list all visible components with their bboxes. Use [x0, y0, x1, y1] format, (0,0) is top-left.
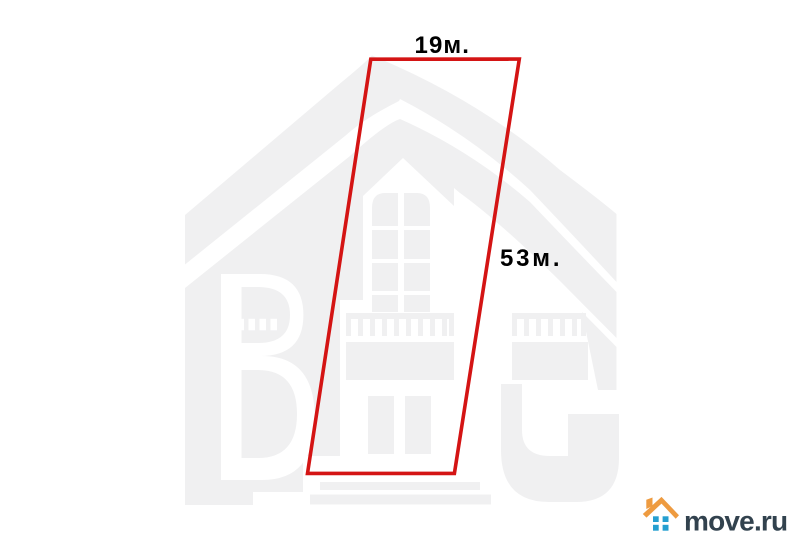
svg-text:19м.: 19м.: [415, 32, 471, 59]
svg-text:move.ru: move.ru: [684, 506, 787, 537]
svg-text:53м.: 53м.: [500, 245, 562, 272]
